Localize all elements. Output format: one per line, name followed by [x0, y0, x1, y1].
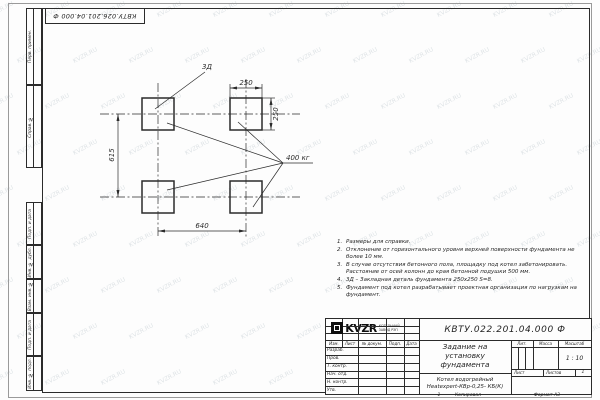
tb-col-data: Дата: [404, 340, 419, 347]
tb-row-developed: Разраб.: [327, 347, 358, 355]
margin-box-first-application: Перв. примен.: [26, 8, 42, 85]
margin-box-inventory-original: Инв. № подл.: [26, 356, 42, 391]
dim-left-615: 615: [108, 148, 116, 162]
tb-col-docnum: № докум.: [358, 340, 386, 347]
tb-row-tcontrol: Т. контр.: [327, 363, 358, 371]
tb-row-ncontrol: Н. контр.: [327, 378, 358, 386]
tb-product-name: Котел водогрейный Heatexpert-КВр-0,25- К…: [419, 373, 511, 394]
tb-doc-number: КВТУ.022.201.04.000 Ф: [419, 319, 591, 340]
footer-page-number: 1: [434, 393, 444, 398]
tb-drawing-title: Задание на установку фундамента: [419, 340, 511, 373]
dim-right-250: 250: [272, 107, 280, 121]
margin-box-label: Инв. № подл.: [28, 358, 33, 389]
tb-scale-value: 1 : 10: [558, 347, 591, 369]
margin-box-label: Инв. № дубл.: [28, 247, 33, 277]
margin-box-label: Подп. и дата: [28, 320, 33, 350]
drawing-sheet: KVZR.RUKVZR.RUKVZR.RUKVZR.RUKVZR.RUKVZR.…: [0, 0, 600, 400]
note-item: 5.Фундамент под котел разрабатывает прое…: [337, 285, 583, 299]
tb-sheets-label: Листов: [546, 370, 561, 375]
tb-mass-label: Масса: [533, 340, 558, 347]
note-item: 1.Размеры для справки.: [337, 239, 583, 246]
rotated-doc-number: КВТУ.026.201.04.000 Ф: [53, 12, 136, 20]
margin-box-label: Перв. примен.: [28, 30, 33, 63]
tb-row-dept-head: Нач. отд.: [327, 371, 358, 379]
tb-lit-label: Лит.: [511, 340, 533, 347]
kvzr-logo-icon: [331, 322, 343, 334]
margin-box-label: Справ. №: [28, 116, 33, 138]
dimension-arrows: [117, 87, 273, 233]
dim-bottom-640: 640: [195, 222, 209, 230]
load-label: 400 кг: [286, 154, 310, 162]
tb-col-list: Лист: [342, 340, 358, 347]
rotated-doc-number-stamp: КВТУ.026.201.04.000 Ф: [45, 8, 145, 24]
margin-box-inventory-duplicate: Инв. № дубл.: [26, 245, 42, 279]
title-block: Изм. Лист № докум. Подп. Дата Разраб. Пр…: [325, 318, 592, 395]
note-item: 2.Отклонение от горизонтального уровня в…: [337, 247, 583, 261]
tb-sheets-value: 1: [575, 369, 591, 376]
tb-col-izm: Изм.: [326, 340, 342, 347]
footer-copied-label: Копировал: [448, 393, 488, 398]
tb-scale-label: Масштаб: [558, 340, 591, 347]
footer-format-label: Формат А3: [523, 393, 571, 398]
embed-detail-label: 3Д: [202, 63, 212, 71]
note-item: 4.3Д – Закладная деталь фундамента 250х2…: [337, 277, 583, 284]
margin-box-label: Взам. инв. №: [28, 281, 33, 311]
margin-box-signature-date-1: Подп. и дата: [26, 202, 42, 245]
margin-box-signature-date-2: Подп. и дата: [26, 313, 42, 356]
margin-box-replaced-inventory: Взам. инв. №: [26, 279, 42, 313]
tb-company-logo: KVZR КОТЕЛЬНЫЙ ЗАВОД РЭП: [326, 319, 405, 337]
dimension-lines: [118, 72, 313, 231]
tb-row-approved: Утв.: [327, 386, 358, 394]
margin-box-reference-number: Справ. №: [26, 85, 42, 168]
dim-top-250: 250: [239, 79, 253, 87]
tb-row-checked: Пров.: [327, 355, 358, 363]
notes-list: 1.Размеры для справки. 2.Отклонение от г…: [337, 239, 583, 300]
note-item: 3.В случае отсутствия бетонного пола, пл…: [337, 262, 583, 276]
tb-sheet-label: Лист: [514, 370, 524, 375]
foundation-plan-drawing: 250 250 615 640 3Д 400 кг: [55, 55, 355, 255]
margin-box-label: Подп. и дата: [28, 209, 33, 239]
tb-col-podp: Подп.: [386, 340, 404, 347]
